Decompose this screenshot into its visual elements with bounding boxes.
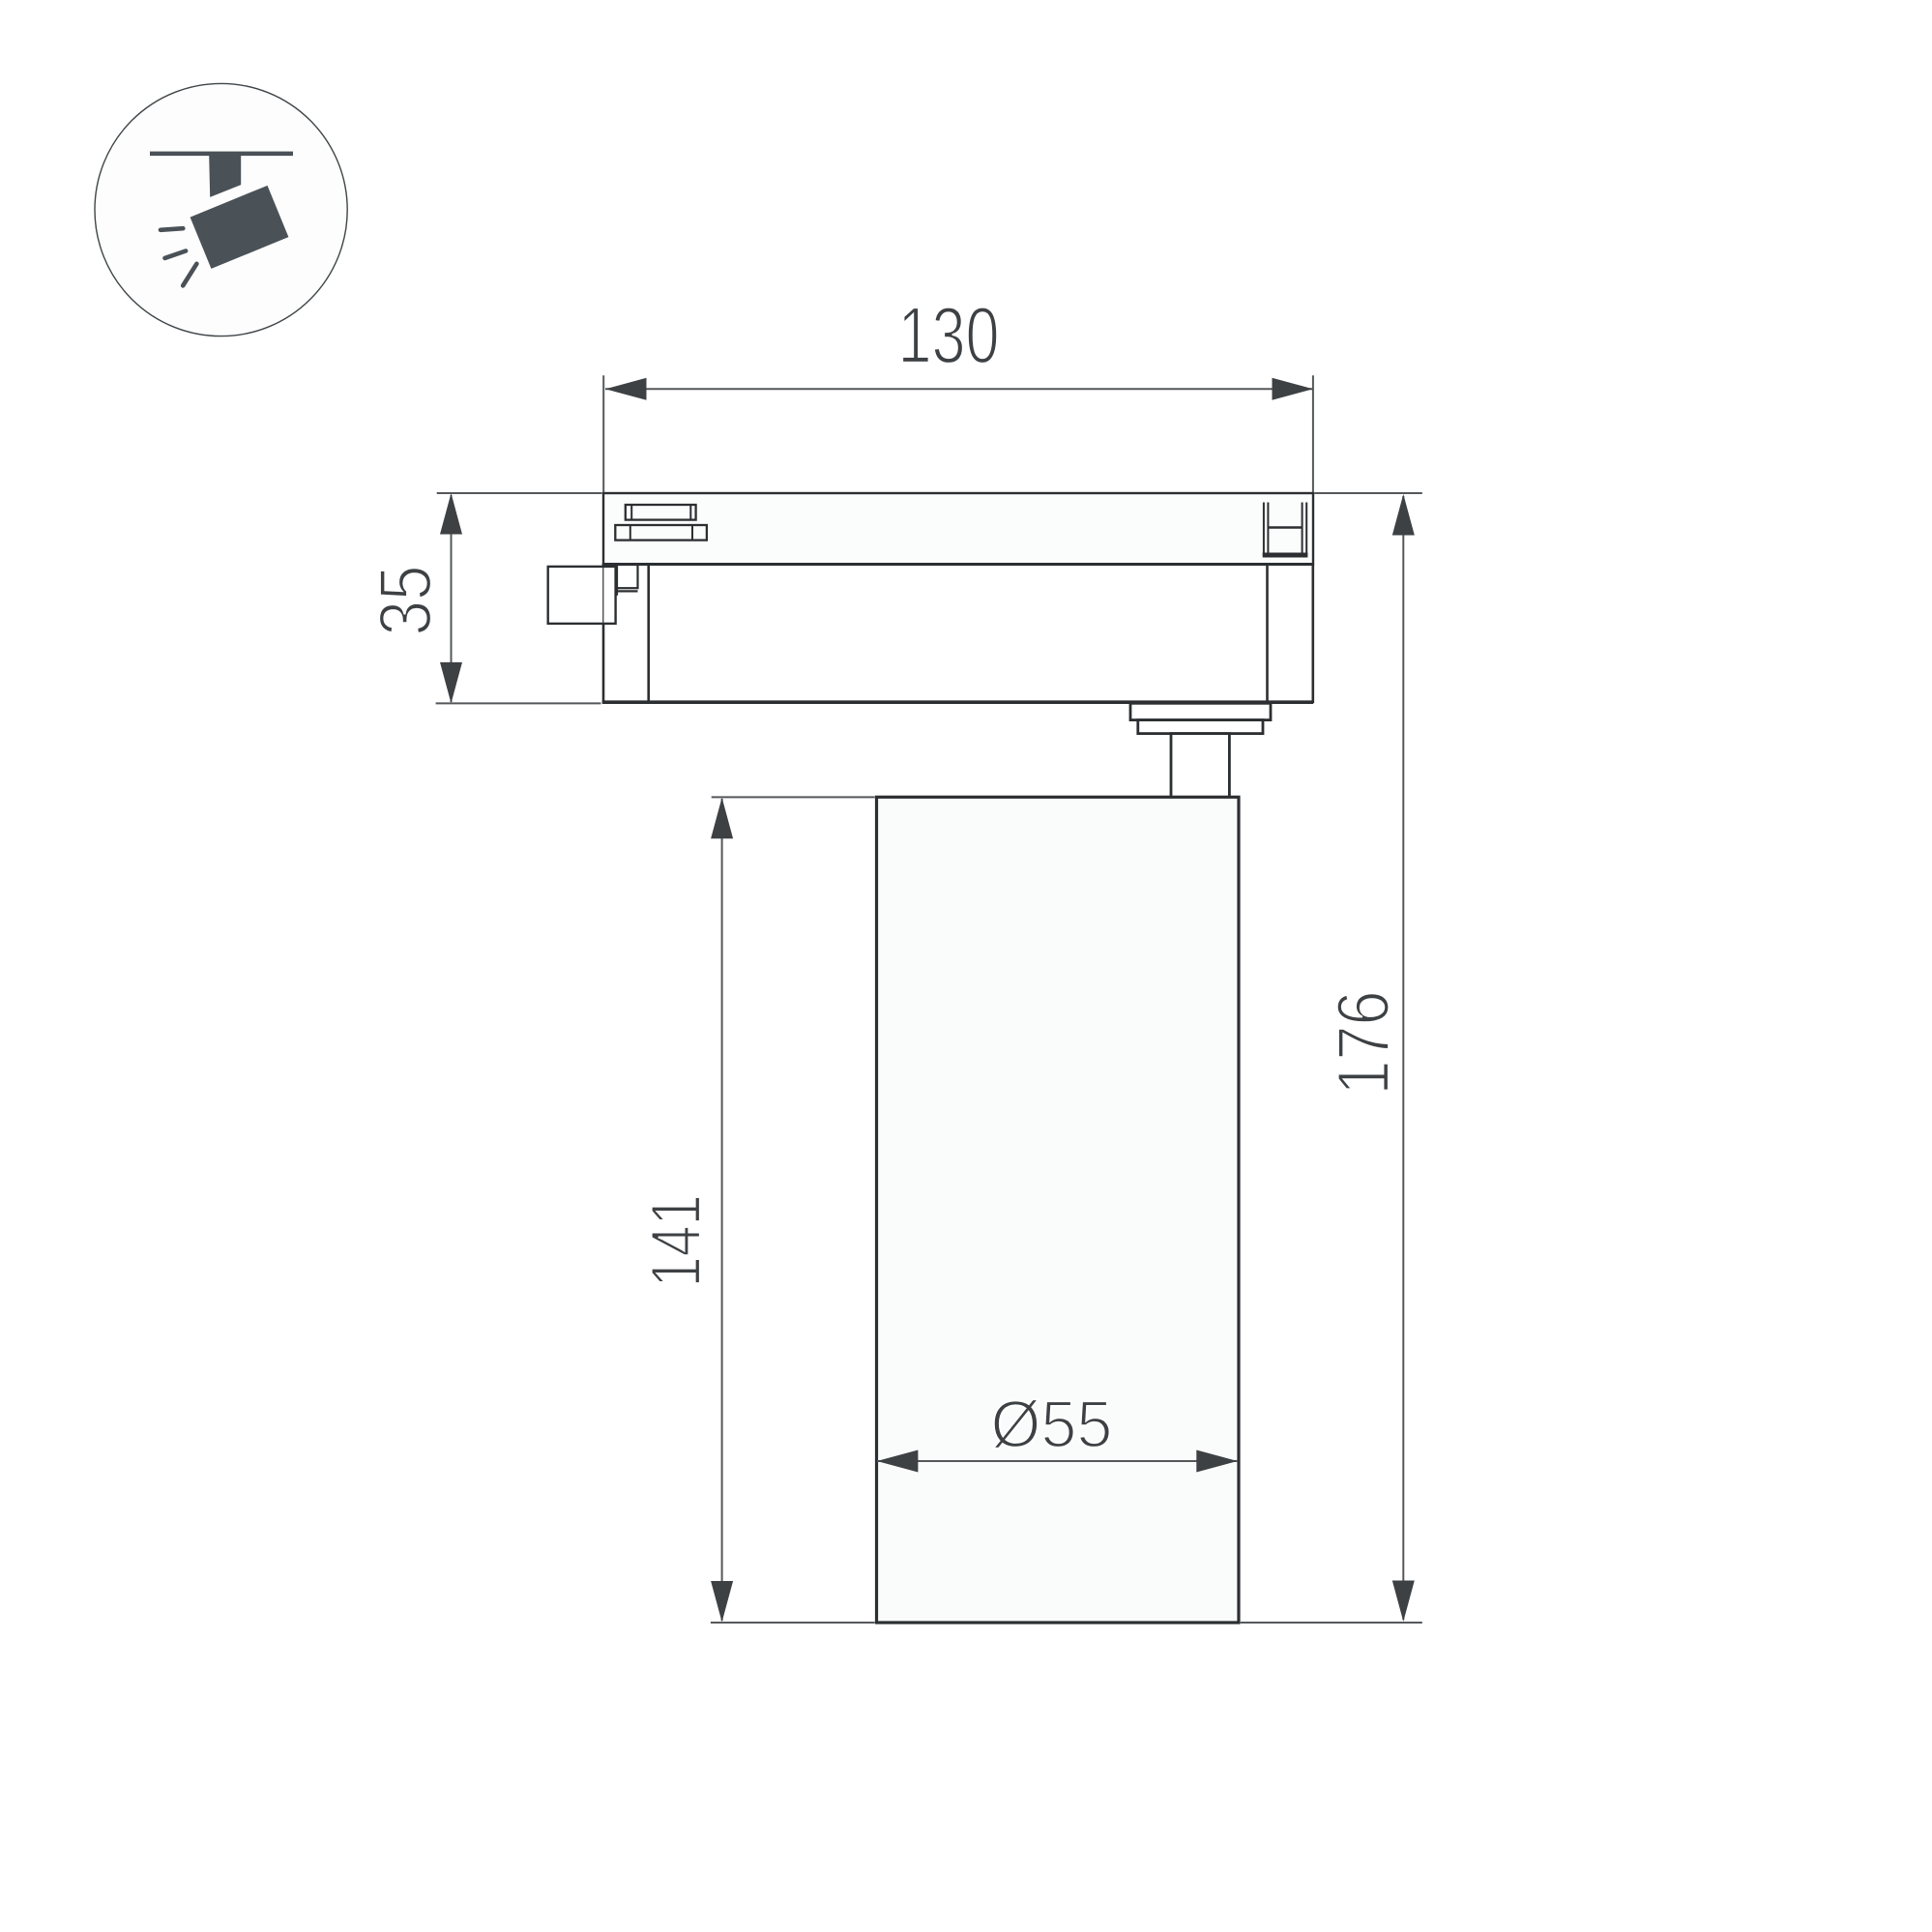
svg-text:35: 35 [366,566,448,636]
svg-text:176: 176 [1323,991,1405,1096]
svg-text:Ø55: Ø55 [991,1388,1113,1462]
svg-text:141: 141 [635,1194,716,1287]
svg-text:130: 130 [898,290,1000,380]
